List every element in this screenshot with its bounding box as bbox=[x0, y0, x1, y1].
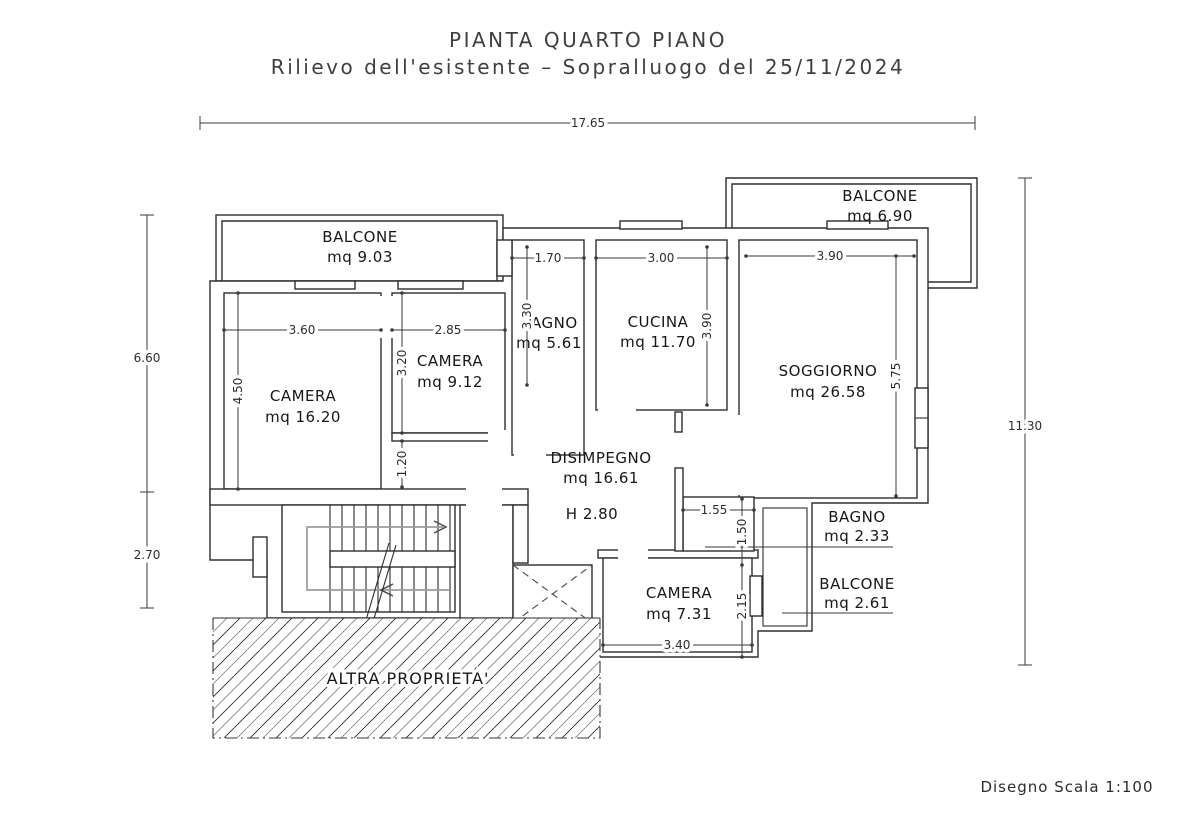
dim-dot bbox=[400, 439, 404, 443]
wall-entry-east bbox=[513, 505, 528, 563]
window-bagno1 bbox=[497, 240, 512, 276]
area-balcone-nw: mq 9.03 bbox=[327, 248, 393, 266]
dim-value: 3.90 bbox=[817, 249, 844, 263]
dim-dot bbox=[582, 256, 586, 260]
area-camera-2: mq 9.12 bbox=[417, 373, 483, 391]
title-block: PIANTA QUARTO PIANO Rilievo dell'esisten… bbox=[271, 28, 905, 79]
dim-dot bbox=[744, 254, 748, 258]
other-property-label: ALTRA PROPRIETA' bbox=[327, 669, 490, 688]
dim-dot bbox=[222, 328, 226, 332]
label-balcone-se: BALCONE bbox=[819, 575, 894, 593]
dim-value: 11.30 bbox=[1008, 419, 1042, 433]
dim-overall-width: 17.65 bbox=[200, 116, 975, 130]
dim-dot bbox=[705, 403, 709, 407]
dim-value: 3.60 bbox=[289, 323, 316, 337]
area-balcone-se: mq 2.61 bbox=[824, 594, 890, 612]
floor-plan-sheet: PIANTA QUARTO PIANO Rilievo dell'esisten… bbox=[0, 0, 1195, 819]
wall-stub-cucina bbox=[675, 412, 682, 432]
stair-landing bbox=[330, 551, 455, 567]
label-balcone-ne: BALCONE bbox=[842, 187, 917, 205]
dim-value: 6.60 bbox=[134, 351, 161, 365]
area-balcone-ne: mq 6.90 bbox=[847, 207, 913, 225]
dim-value: 3.90 bbox=[700, 313, 714, 340]
dim-dot bbox=[400, 485, 404, 489]
dim-overall-height: 11.30 bbox=[1008, 178, 1042, 665]
area-camera-3: mq 7.31 bbox=[646, 605, 712, 623]
window-stairwell bbox=[253, 537, 267, 577]
door-bagno1 bbox=[514, 449, 546, 459]
door-cucina bbox=[598, 403, 636, 415]
dim-value: 2.15 bbox=[735, 593, 749, 620]
opening-soggiorno bbox=[732, 415, 746, 495]
dim-dot bbox=[525, 383, 529, 387]
dim-value: 1.55 bbox=[701, 503, 728, 517]
dim-dot bbox=[725, 256, 729, 260]
dim-dot bbox=[894, 254, 898, 258]
door-camera2 bbox=[488, 430, 507, 444]
dim-value: 5.75 bbox=[889, 363, 903, 390]
area-disimpegno: mq 16.61 bbox=[563, 469, 639, 487]
window-camera2 bbox=[398, 281, 463, 289]
dim-dot bbox=[400, 431, 404, 435]
area-soggiorno: mq 26.58 bbox=[790, 383, 866, 401]
balcony-ne-bg2 bbox=[928, 228, 977, 288]
label-balcone-nw: BALCONE bbox=[322, 228, 397, 246]
dim-dot bbox=[503, 328, 507, 332]
other-property: ALTRA PROPRIETA' bbox=[213, 618, 600, 738]
dim-left-upper: 6.60 2.70 bbox=[134, 215, 161, 608]
dim-value: 1.50 bbox=[735, 519, 749, 546]
dim-dot bbox=[525, 245, 529, 249]
dim-dot bbox=[894, 494, 898, 498]
dim-dot bbox=[740, 655, 744, 659]
dim-value: 1.70 bbox=[535, 251, 562, 265]
dim-dot bbox=[236, 291, 240, 295]
dim-value: 3.20 bbox=[395, 350, 409, 377]
label-bagno-2: BAGNO bbox=[828, 508, 885, 526]
label-disimpegno: DISIMPEGNO bbox=[550, 449, 651, 467]
door-camera3-balcony bbox=[750, 576, 762, 616]
dim-dot bbox=[594, 256, 598, 260]
dim-dot bbox=[912, 254, 916, 258]
label-camera-3: CAMERA bbox=[646, 584, 712, 602]
dim-value: 1.20 bbox=[395, 451, 409, 478]
area-camera-1: mq 16.20 bbox=[265, 408, 341, 426]
dim-value: 3.00 bbox=[648, 251, 675, 265]
dim-value: 17.65 bbox=[571, 116, 605, 130]
label-cucina: CUCINA bbox=[628, 313, 689, 331]
dim-dot bbox=[390, 328, 394, 332]
entry-corridor-cell bbox=[460, 505, 513, 618]
scale-note: Disegno Scala 1:100 bbox=[980, 778, 1153, 796]
label-soggiorno: SOGGIORNO bbox=[779, 362, 878, 380]
page-title: PIANTA QUARTO PIANO bbox=[449, 28, 727, 52]
area-bagno-2: mq 2.33 bbox=[824, 527, 890, 545]
label-camera-2: CAMERA bbox=[417, 352, 483, 370]
dim-value: 2.85 bbox=[435, 323, 462, 337]
entrance-door bbox=[466, 487, 502, 507]
dim-dot bbox=[705, 245, 709, 249]
dim-value: 3.30 bbox=[520, 303, 534, 330]
dim-dot bbox=[752, 508, 756, 512]
height-note-disimpegno: H 2.80 bbox=[566, 505, 618, 523]
dim-dot bbox=[236, 487, 240, 491]
label-camera-1: CAMERA bbox=[270, 387, 336, 405]
dim-dot bbox=[510, 256, 514, 260]
area-bagno-1: mq 5.61 bbox=[516, 334, 582, 352]
door-camera3 bbox=[618, 548, 648, 560]
dim-value: 3.40 bbox=[664, 638, 691, 652]
window-cucina bbox=[620, 221, 682, 229]
page-subtitle: Rilievo dell'esistente – Sopralluogo del… bbox=[271, 55, 905, 79]
dim-value: 2.70 bbox=[134, 548, 161, 562]
dim-dot bbox=[740, 497, 744, 501]
dim-dot bbox=[750, 643, 754, 647]
elevator-shaft bbox=[513, 565, 592, 623]
window-camera1 bbox=[295, 281, 355, 289]
area-cucina: mq 11.70 bbox=[620, 333, 696, 351]
dim-dot bbox=[400, 291, 404, 295]
dim-dot bbox=[601, 643, 605, 647]
dim-dot bbox=[379, 328, 383, 332]
dim-dot bbox=[681, 508, 685, 512]
dim-value: 4.50 bbox=[231, 378, 245, 405]
